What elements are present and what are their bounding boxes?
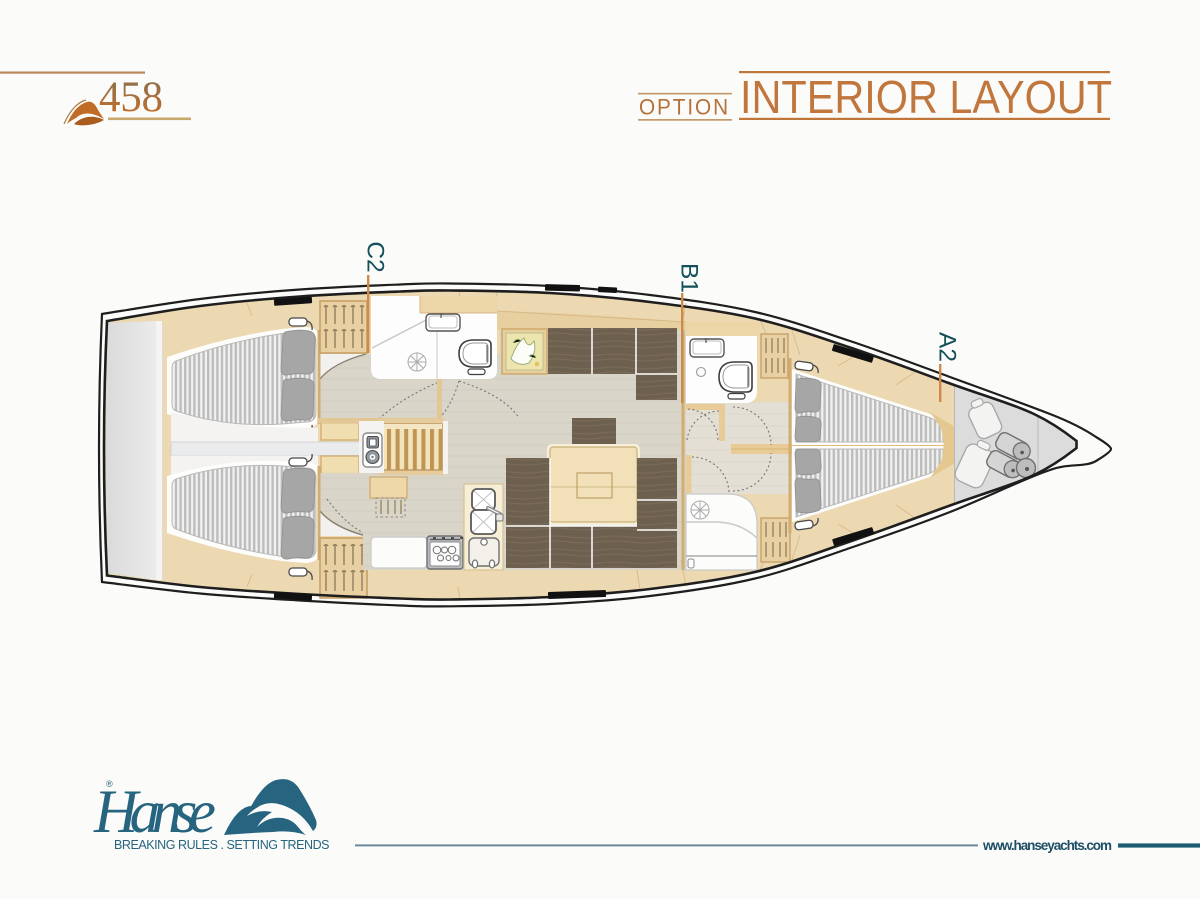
svg-text:B1: B1 xyxy=(676,263,703,293)
svg-text:C2: C2 xyxy=(362,241,389,272)
svg-text:®: ® xyxy=(106,779,113,789)
svg-text:458: 458 xyxy=(99,74,166,121)
svg-text:Hanse: Hanse xyxy=(93,779,216,846)
svg-text:A2: A2 xyxy=(934,332,961,362)
svg-text:www.hanseyachts.com: www.hanseyachts.com xyxy=(982,838,1112,853)
svg-text:OPTION: OPTION xyxy=(639,95,730,120)
svg-text:INTERIOR LAYOUT: INTERIOR LAYOUT xyxy=(740,71,1112,123)
svg-text:BREAKING RULES . SETTING TREND: BREAKING RULES . SETTING TRENDS xyxy=(114,838,330,852)
